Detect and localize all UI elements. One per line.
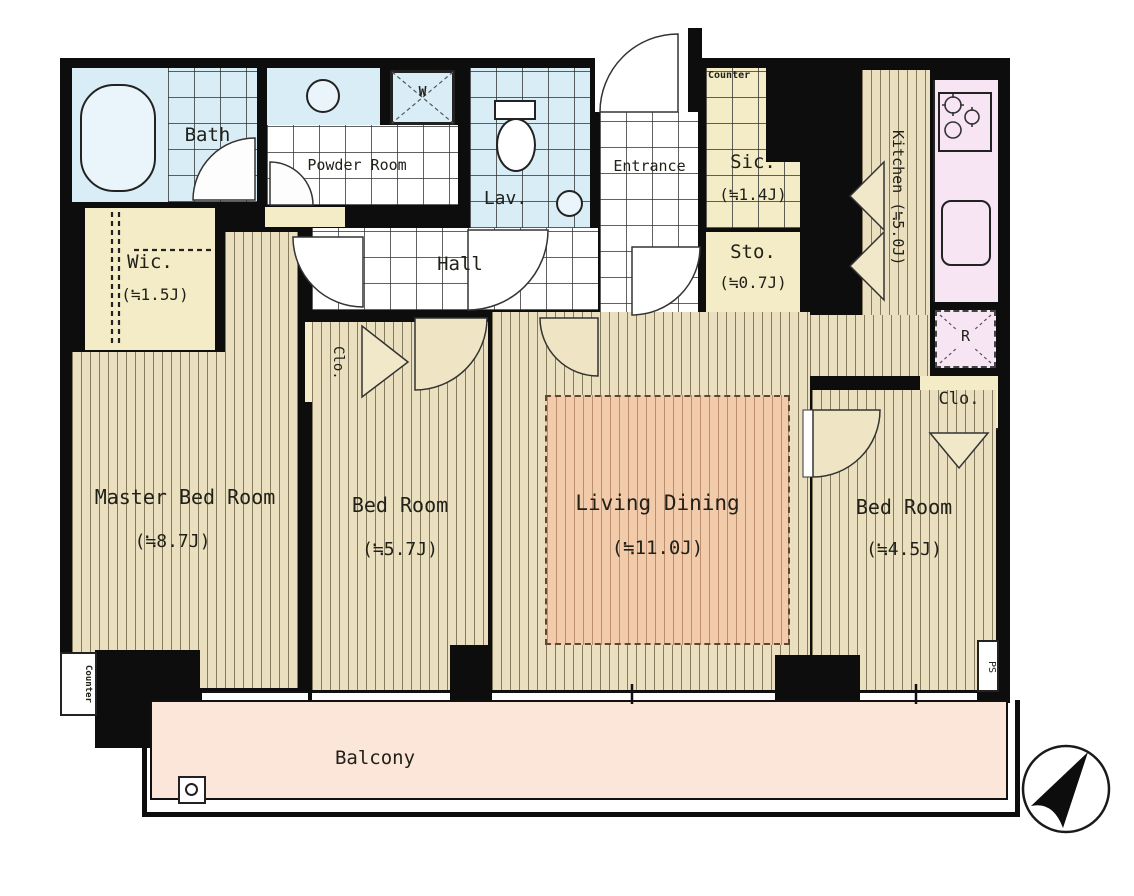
balcony-drain-cap (185, 783, 198, 796)
bath-label: Bath (160, 125, 255, 146)
entrance-label: Entrance (602, 158, 697, 175)
toilet-tank (494, 100, 536, 120)
counter-bottom-label: Counter (66, 656, 92, 712)
master-bedroom-area-label: (≒8.7J) (70, 532, 275, 552)
fridge-label: R (935, 328, 996, 345)
sto-label: Sto. (704, 242, 802, 263)
living-floor-ext (810, 315, 930, 376)
living-rug (545, 395, 790, 645)
living-dining-area-label: (≒11.0J) (530, 538, 785, 559)
pipe-space-label: PS (979, 646, 997, 688)
bedroom2-area-label: (≒5.7J) (312, 540, 488, 560)
sic-counter-label: Counter (708, 70, 768, 81)
master-bedroom-upper (225, 232, 298, 352)
master-bedroom-label: Master Bed Room (58, 486, 312, 508)
porch-wall (688, 28, 702, 114)
compass-icon (1023, 746, 1109, 832)
lavatory-label: Lav. (468, 189, 543, 209)
balcony-rail-bottom (142, 812, 1020, 817)
room-entrance (600, 112, 698, 330)
stove (938, 92, 992, 152)
column-top-right (766, 58, 862, 162)
bedroom3-label: Bed Room (812, 496, 996, 518)
closet-right-label: Clo. (920, 390, 998, 409)
sic-area-label: (≒1.4J) (698, 186, 808, 204)
closet-middle-label: Clo. (317, 330, 345, 396)
toilet-bowl (496, 118, 536, 172)
powder-threshold (265, 207, 345, 227)
bathtub (80, 84, 156, 192)
column-bottom-center (450, 645, 492, 703)
kitchen-label: Kitchen (≒5.0J) (876, 88, 906, 308)
living-dining-label: Living Dining (530, 492, 785, 515)
balcony-label: Balcony (270, 748, 480, 769)
entrance-porch (595, 30, 688, 112)
balcony-rail-left (142, 700, 147, 817)
washer-label: W (390, 86, 455, 100)
bedroom2-label: Bed Room (312, 494, 488, 516)
sto-area-label: (≒0.7J) (698, 274, 808, 292)
powder-sink (306, 79, 340, 113)
wic-area-label: (≒1.5J) (95, 286, 215, 304)
kitchen-sink (941, 200, 991, 266)
wic-label: Wic. (85, 252, 215, 273)
bedroom3-area-label: (≒4.5J) (812, 540, 996, 560)
room-wic (85, 208, 215, 350)
sic-label: Sic. (704, 152, 802, 173)
floor-plan: Bath Powder Room W Lav. Entrance Hall Co… (0, 0, 1134, 896)
hall-label: Hall (400, 254, 520, 275)
balcony-rail-right (1015, 700, 1020, 817)
master-bedroom-floor (72, 352, 298, 688)
lav-sink (556, 190, 583, 217)
powder-room-label: Powder Room (287, 157, 427, 174)
